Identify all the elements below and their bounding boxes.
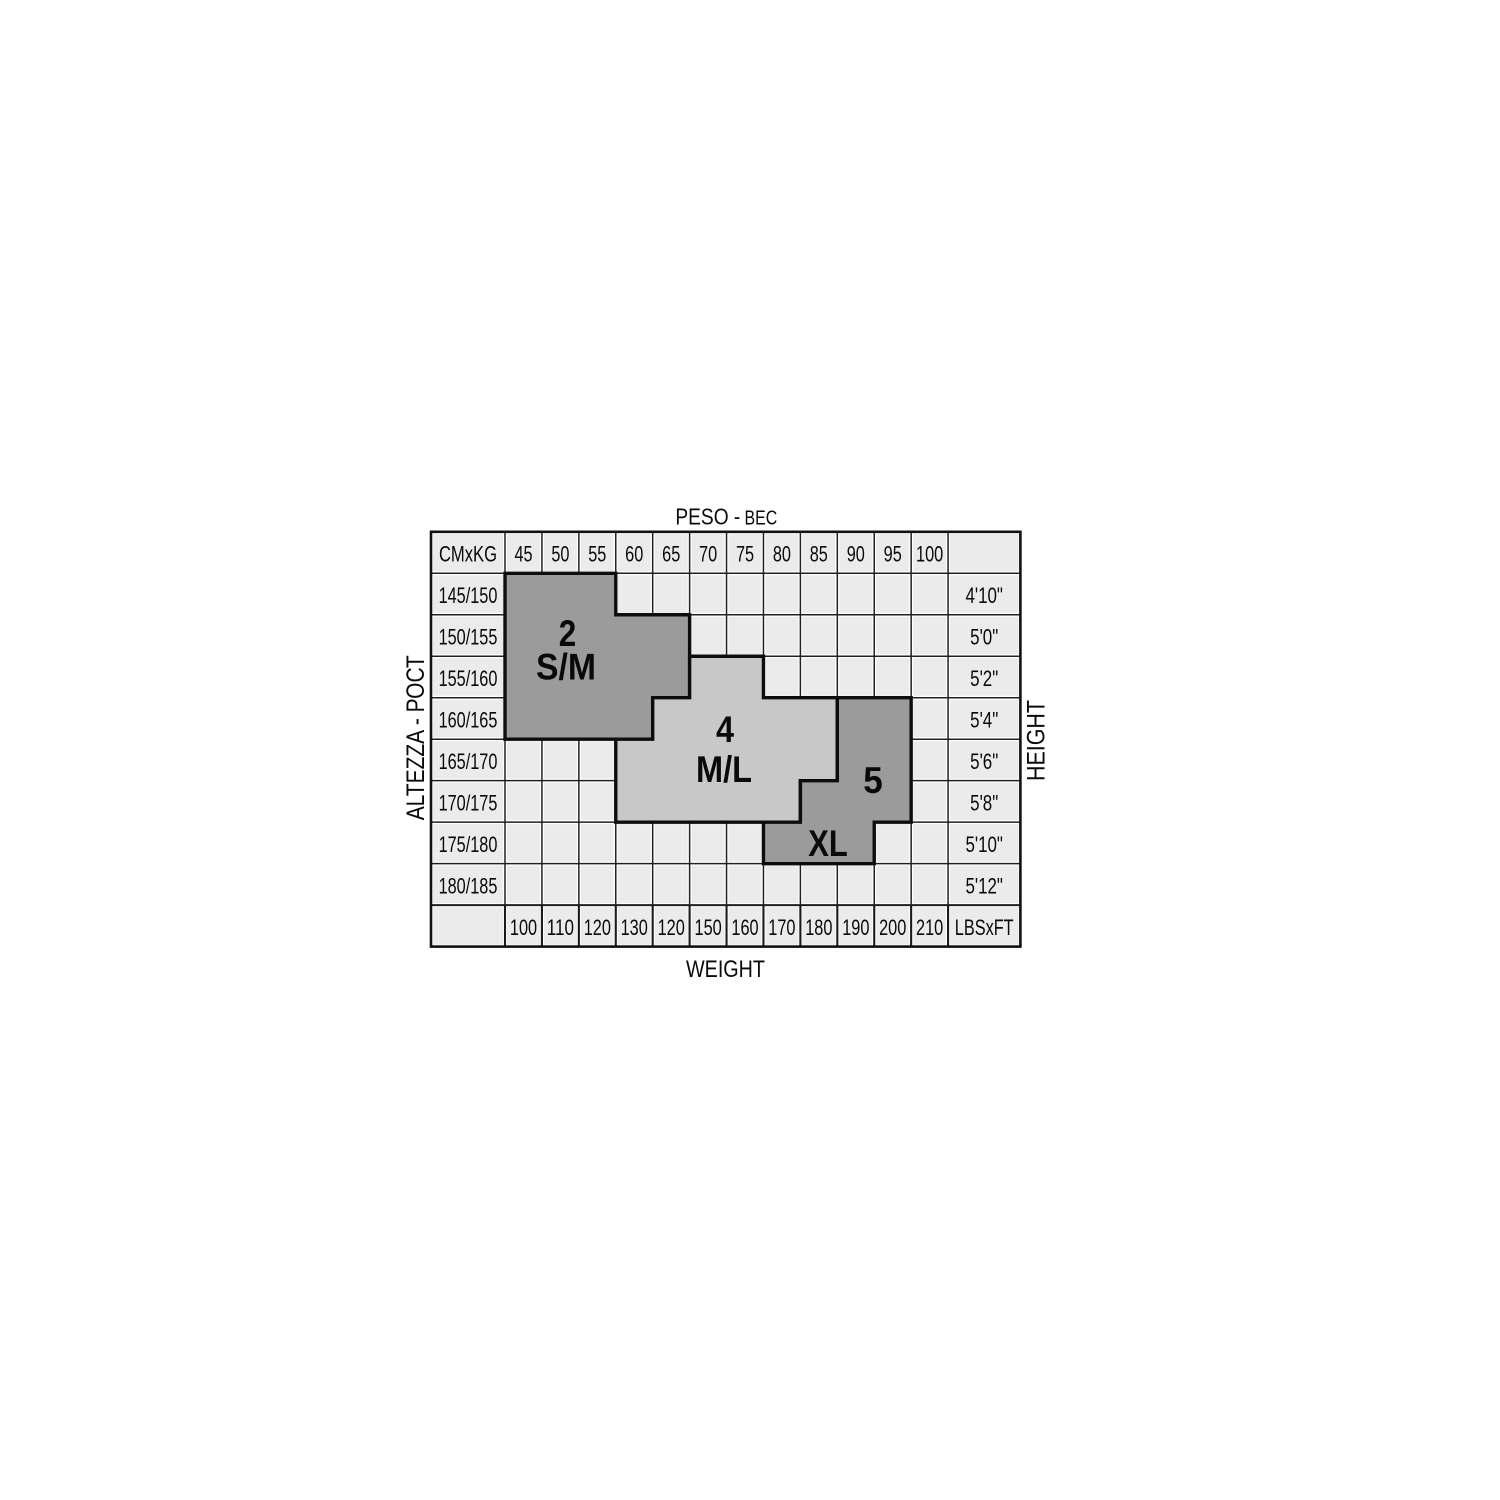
svg-text:170/175: 170/175 (439, 790, 498, 815)
svg-text:CMxKG: CMxKG (439, 542, 497, 567)
svg-text:90: 90 (847, 542, 865, 567)
svg-text:120: 120 (658, 915, 685, 940)
svg-text:150/155: 150/155 (439, 625, 498, 650)
svg-text:190: 190 (842, 915, 869, 940)
svg-text:5: 5 (863, 760, 883, 801)
svg-text:170: 170 (768, 915, 795, 940)
svg-text:S/M: S/M (536, 647, 596, 688)
svg-text:200: 200 (879, 915, 906, 940)
svg-text:5'2": 5'2" (970, 666, 998, 691)
svg-text:150: 150 (695, 915, 722, 940)
svg-text:65: 65 (662, 542, 680, 567)
svg-text:ALTEZZA - РОСТ: ALTEZZA - РОСТ (402, 655, 430, 820)
svg-text:WEIGHT: WEIGHT (686, 956, 765, 983)
svg-text:110: 110 (547, 915, 574, 940)
svg-text:145/150: 145/150 (439, 583, 498, 608)
svg-text:210: 210 (916, 915, 943, 940)
svg-text:5'8": 5'8" (970, 790, 998, 815)
svg-text:160/165: 160/165 (439, 708, 498, 733)
svg-text:100: 100 (510, 915, 537, 940)
svg-text:ВЕС: ВЕС (745, 507, 778, 530)
svg-text:XL: XL (808, 823, 848, 864)
svg-text:4'10": 4'10" (965, 583, 1003, 608)
svg-text:175/180: 175/180 (439, 832, 498, 857)
svg-text:M/L: M/L (696, 749, 752, 790)
svg-text:160: 160 (731, 915, 758, 940)
svg-text:180: 180 (805, 915, 832, 940)
svg-text:PESO -: PESO - (675, 504, 740, 530)
svg-text:4: 4 (716, 709, 734, 750)
svg-text:5'12": 5'12" (965, 873, 1003, 898)
svg-text:5'10": 5'10" (965, 832, 1003, 857)
svg-text:180/185: 180/185 (439, 873, 498, 898)
svg-text:45: 45 (514, 542, 532, 567)
svg-text:60: 60 (625, 542, 643, 567)
svg-text:100: 100 (916, 542, 943, 567)
svg-text:75: 75 (736, 542, 754, 567)
svg-text:80: 80 (773, 542, 791, 567)
svg-text:5'6": 5'6" (970, 749, 998, 774)
svg-text:130: 130 (621, 915, 648, 940)
svg-text:70: 70 (699, 542, 717, 567)
svg-text:85: 85 (810, 542, 828, 567)
svg-text:LBSxFT: LBSxFT (955, 915, 1014, 940)
svg-text:155/160: 155/160 (439, 666, 498, 691)
svg-text:120: 120 (584, 915, 611, 940)
svg-text:HEIGHT: HEIGHT (1022, 700, 1050, 781)
svg-text:55: 55 (588, 542, 606, 567)
svg-text:95: 95 (884, 542, 902, 567)
svg-text:50: 50 (551, 542, 569, 567)
svg-text:165/170: 165/170 (439, 749, 498, 774)
svg-text:5'4": 5'4" (970, 708, 998, 733)
svg-text:5'0": 5'0" (970, 625, 998, 650)
